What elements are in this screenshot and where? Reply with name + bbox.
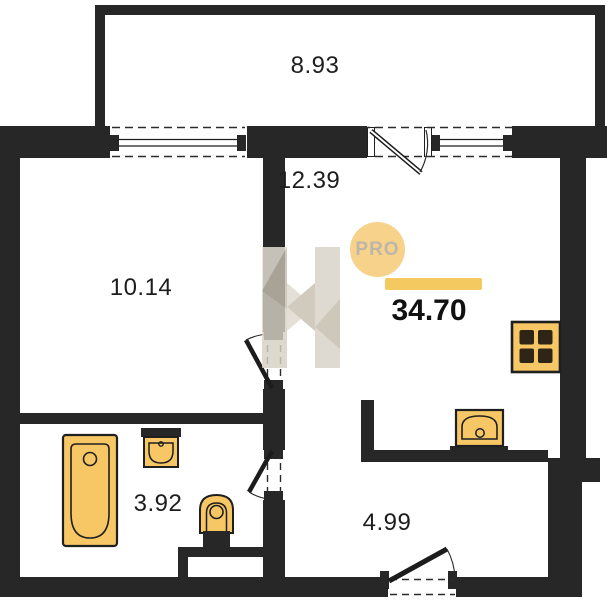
plan-linework xyxy=(0,0,607,600)
bathroom-area-label: 3.92 xyxy=(134,490,183,518)
bathtub-icon xyxy=(63,435,117,546)
bathroom-door xyxy=(249,451,281,499)
pro-badge: PRO xyxy=(350,222,405,277)
balcony-area-label: 8.93 xyxy=(291,52,340,80)
hall-area-label: 12.39 xyxy=(278,167,341,195)
window-sill-lines xyxy=(119,140,503,147)
balcony-door xyxy=(371,130,428,173)
kitchen-sink-icon xyxy=(450,410,508,460)
stove-icon xyxy=(512,322,560,372)
bathroom-sink-icon xyxy=(141,428,181,467)
window-dashes xyxy=(112,128,512,157)
total-area-label: 34.70 xyxy=(391,294,466,328)
accent-bar xyxy=(385,278,482,290)
entry-area-label: 4.99 xyxy=(363,509,412,537)
living-room-area-label: 10.14 xyxy=(110,274,173,302)
entrance-door xyxy=(389,549,455,595)
h-logo-watermark-icon xyxy=(262,247,340,368)
floor-plan: 8.93 12.39 10.14 3.92 4.99 PRO 34.70 xyxy=(0,0,607,600)
toilet-icon xyxy=(200,495,233,548)
